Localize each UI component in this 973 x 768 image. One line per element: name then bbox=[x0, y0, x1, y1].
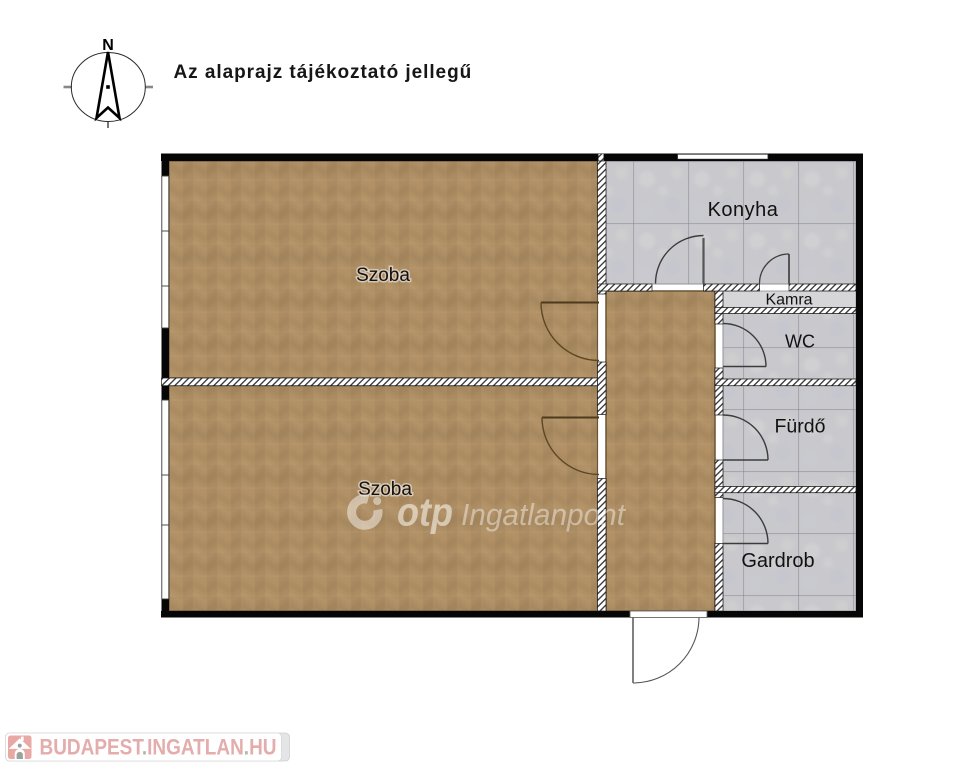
svg-text:otp: otp bbox=[397, 491, 453, 535]
svg-text:Kamra: Kamra bbox=[765, 292, 812, 309]
svg-text:Konyha: Konyha bbox=[708, 199, 779, 221]
svg-text:N: N bbox=[102, 37, 114, 54]
svg-text:Fürdő: Fürdő bbox=[775, 416, 826, 438]
svg-text:Ingatlanpont: Ingatlanpont bbox=[461, 497, 626, 532]
svg-text:WC: WC bbox=[785, 332, 815, 352]
svg-text:Szoba: Szoba bbox=[356, 265, 410, 286]
svg-text:Gardrob: Gardrob bbox=[741, 550, 814, 572]
svg-text:Az alaprajz tájékoztató jelleg: Az alaprajz tájékoztató jellegű bbox=[174, 62, 473, 83]
svg-text:BUDAPEST.INGATLAN.HU: BUDAPEST.INGATLAN.HU bbox=[40, 735, 277, 760]
